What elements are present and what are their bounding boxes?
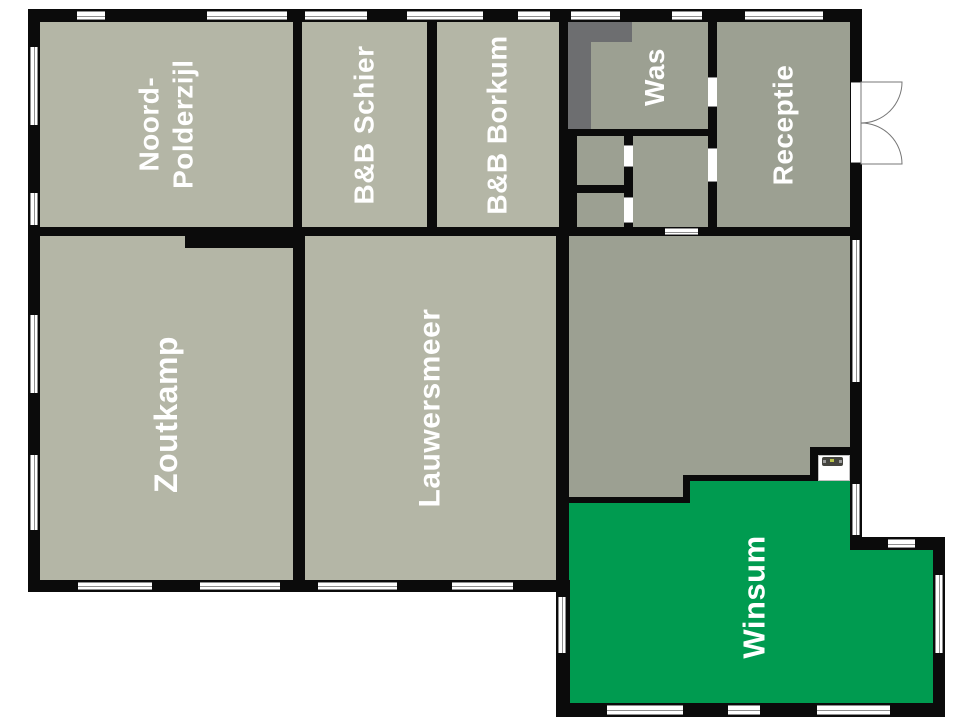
- window: [935, 575, 943, 653]
- room-bb-borkum: [437, 22, 559, 227]
- room-small-right: [633, 136, 708, 228]
- window: [30, 47, 38, 125]
- wall-middle-horizontal: [28, 227, 862, 236]
- room-winsum-right: [690, 481, 850, 703]
- window: [78, 582, 152, 590]
- window: [852, 484, 860, 535]
- window: [305, 11, 367, 20]
- wall-receptie-left: [708, 9, 717, 236]
- window: [745, 11, 823, 20]
- window: [817, 705, 890, 715]
- window: [318, 582, 397, 590]
- window: [558, 597, 566, 653]
- wall-borkum-was: [559, 9, 568, 236]
- window: [665, 228, 698, 235]
- floor-plan: Noord-Polderzijl B&B Schier B&B Borkum W…: [0, 0, 960, 720]
- room-small-bottom: [577, 193, 624, 227]
- room-receptie: [717, 22, 850, 227]
- window: [607, 705, 683, 715]
- door-opening-smalltop: [624, 145, 633, 167]
- dark-zone-horizontal: [568, 22, 632, 42]
- door-opening-was-receptie: [708, 77, 717, 107]
- wall-hall-winsum-right: [688, 475, 818, 481]
- room-winsum-left: [569, 503, 690, 703]
- wall-hall-winsum-left: [556, 497, 690, 503]
- window: [30, 315, 38, 393]
- wall-step-block: [185, 227, 293, 248]
- window: [852, 240, 860, 382]
- room-hall-lower-left: [568, 475, 683, 497]
- window: [518, 11, 550, 20]
- room-hall-main: [568, 236, 850, 475]
- double-door-icon: [851, 76, 905, 170]
- window: [672, 11, 702, 20]
- door-opening-smallright-receptie: [708, 148, 717, 182]
- window: [77, 11, 105, 20]
- room-winsum-bumpout: [850, 550, 933, 703]
- window: [30, 193, 38, 225]
- wall-lauwersmeer-hall: [556, 236, 569, 592]
- window: [207, 11, 287, 20]
- wall-np-schier: [293, 9, 302, 236]
- room-bb-schier: [302, 22, 427, 227]
- room-zoutkamp: [40, 236, 293, 580]
- window: [571, 11, 620, 20]
- door-opening-smallbottom: [624, 197, 633, 223]
- room-small-top: [577, 136, 624, 185]
- room-lauwersmeer: [305, 236, 556, 580]
- wall-was-bottom: [568, 129, 708, 136]
- window: [30, 455, 38, 530]
- window: [888, 539, 915, 548]
- window: [407, 11, 483, 20]
- window: [452, 582, 513, 590]
- window: [200, 582, 280, 590]
- wall-alcove-left: [810, 447, 818, 481]
- window: [728, 705, 760, 715]
- wall-schier-borkum: [427, 20, 437, 236]
- sink-icon: [822, 457, 843, 466]
- room-noord-polderzijl: [40, 22, 293, 227]
- wall-zoutkamp-lauwersmeer: [293, 236, 305, 582]
